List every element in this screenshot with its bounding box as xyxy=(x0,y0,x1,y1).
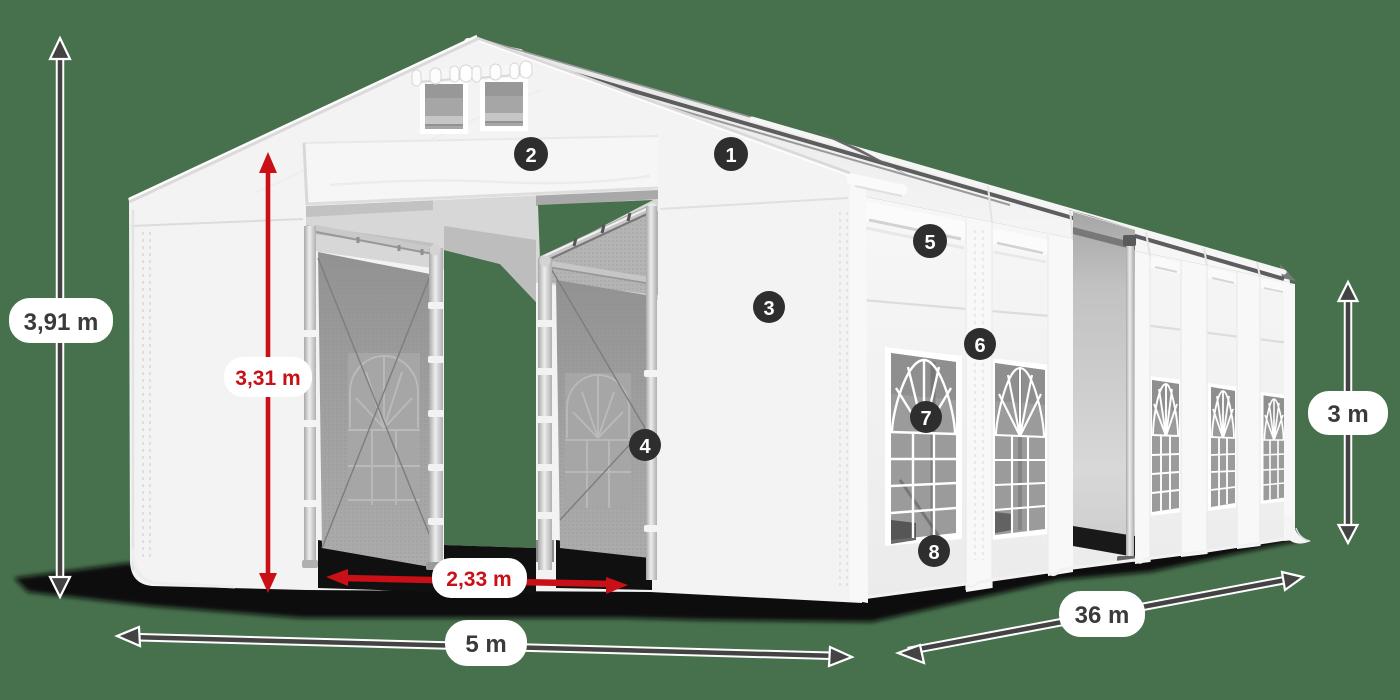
svg-text:3: 3 xyxy=(763,298,774,320)
svg-text:5: 5 xyxy=(924,232,935,254)
svg-text:1: 1 xyxy=(725,145,736,167)
svg-text:5 m: 5 m xyxy=(465,631,506,658)
svg-text:2,33 m: 2,33 m xyxy=(446,568,511,591)
svg-text:3 m: 3 m xyxy=(1327,401,1368,428)
svg-text:8: 8 xyxy=(928,542,939,564)
svg-text:3,91 m: 3,91 m xyxy=(24,309,99,336)
svg-text:3,31 m: 3,31 m xyxy=(235,367,300,390)
svg-text:36 m: 36 m xyxy=(1075,602,1130,629)
svg-text:2: 2 xyxy=(525,145,536,167)
svg-text:6: 6 xyxy=(974,335,985,357)
svg-text:7: 7 xyxy=(920,408,931,430)
svg-text:4: 4 xyxy=(639,436,651,458)
